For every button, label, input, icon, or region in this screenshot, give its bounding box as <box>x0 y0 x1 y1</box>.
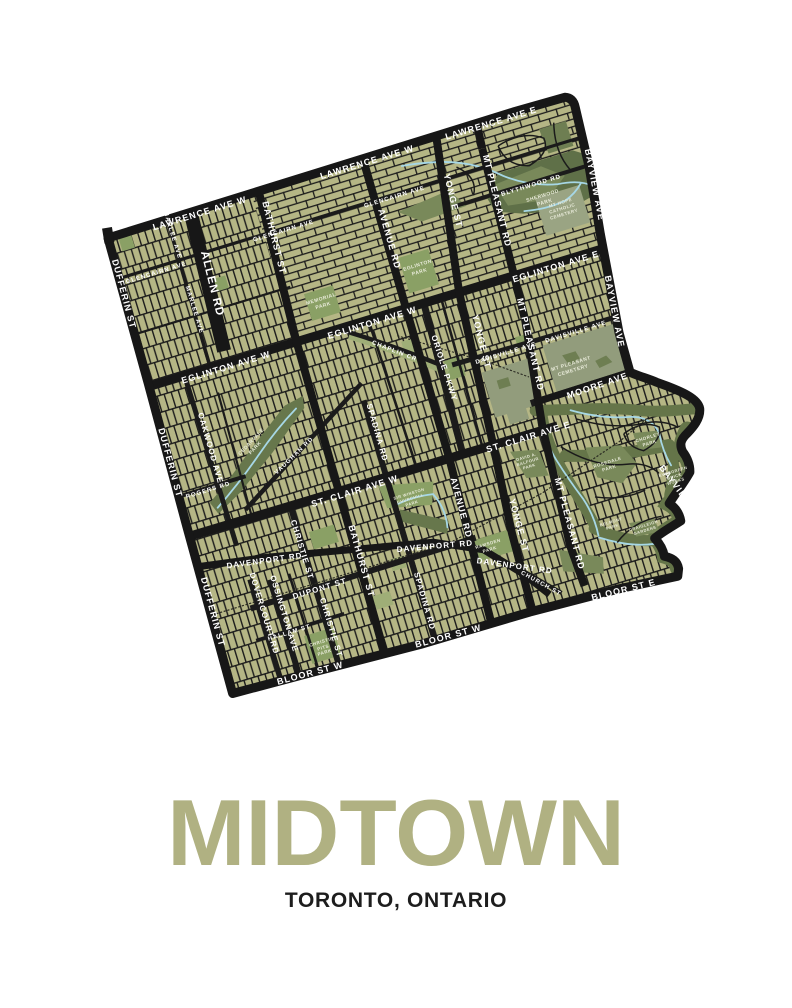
svg-text:MIDTOWN: MIDTOWN <box>167 780 625 885</box>
svg-text:TORONTO, ONTARIO: TORONTO, ONTARIO <box>285 889 507 912</box>
